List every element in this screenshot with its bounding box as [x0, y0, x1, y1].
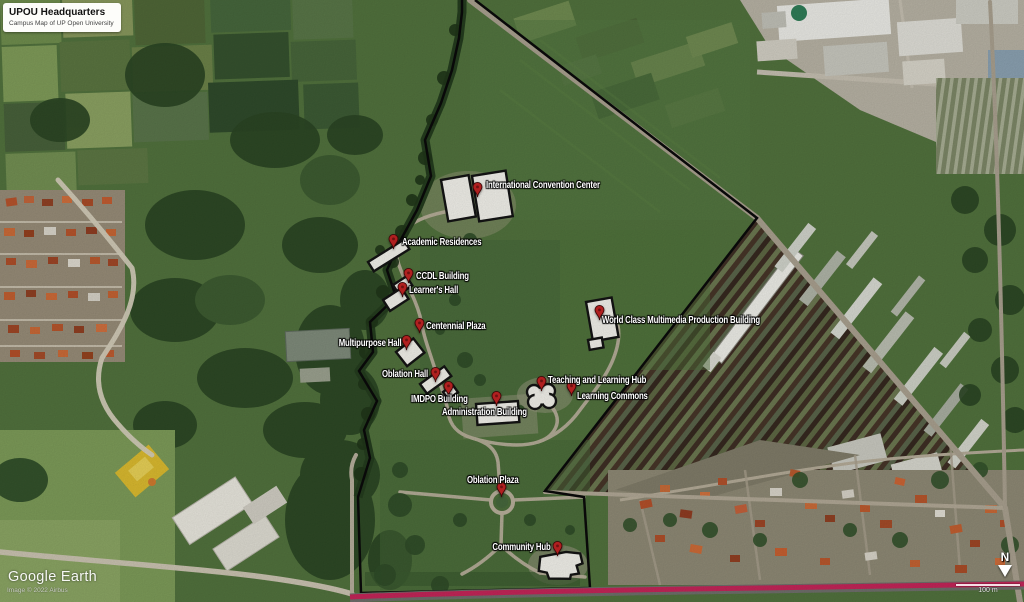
title-card: UPOU Headquarters Campus Map of UP Open … [3, 3, 121, 32]
satellite-imagery [0, 0, 1024, 602]
placemark-pin-oblation-plaza[interactable] [496, 482, 507, 498]
placemark-pin-icon [496, 482, 507, 498]
placemark-pin-icon [397, 282, 408, 298]
placemark-pin-icon [594, 305, 605, 321]
placemark-pin-learning-commons[interactable] [566, 381, 577, 397]
placemark-pin-imdpo-building[interactable] [443, 381, 454, 397]
placemark-pin-administration-building[interactable] [491, 391, 502, 407]
scale-bar: 100 m [956, 584, 1020, 594]
placemark-pin-icon [491, 391, 502, 407]
placemark-pin-academic-residences[interactable] [388, 234, 399, 250]
north-arrow-icon: N [992, 551, 1018, 577]
page-title: UPOU Headquarters [9, 7, 114, 19]
scale-bar-label: 100 m [956, 587, 1020, 594]
imagery-attribution: Image © 2022 Airbus [7, 587, 68, 594]
placemark-pin-icon [430, 367, 441, 383]
placemark-pin-learners-hall[interactable] [397, 282, 408, 298]
placemark-pin-world-class-multimedia-production-building[interactable] [594, 305, 605, 321]
image-grain [0, 0, 1024, 602]
placemark-pin-icon [552, 541, 563, 557]
placemark-pin-icon [566, 381, 577, 397]
placemark-pin-multipurpose-hall[interactable] [401, 335, 412, 351]
placemark-pin-icon [536, 376, 547, 392]
placemark-pin-icon [401, 335, 412, 351]
placemark-pin-icon [443, 381, 454, 397]
map-canvas[interactable]: International Convention Center Academic… [0, 0, 1024, 602]
north-arrow-triangle [998, 565, 1012, 577]
placemark-pin-oblation-hall[interactable] [430, 367, 441, 383]
north-label: N [992, 551, 1018, 564]
placemark-pin-teaching-and-learning-hub[interactable] [536, 376, 547, 392]
google-earth-logo: Google Earth [8, 569, 97, 585]
placemark-pin-centennial-plaza[interactable] [414, 318, 425, 334]
placemark-pin-icon [472, 182, 483, 198]
placemark-pin-international-convention-center[interactable] [472, 182, 483, 198]
placemark-pin-community-hub[interactable] [552, 541, 563, 557]
placemark-pin-icon [414, 318, 425, 334]
page-subtitle: Campus Map of UP Open University [9, 20, 114, 28]
scale-bar-line [956, 584, 1020, 586]
placemark-pin-icon [388, 234, 399, 250]
